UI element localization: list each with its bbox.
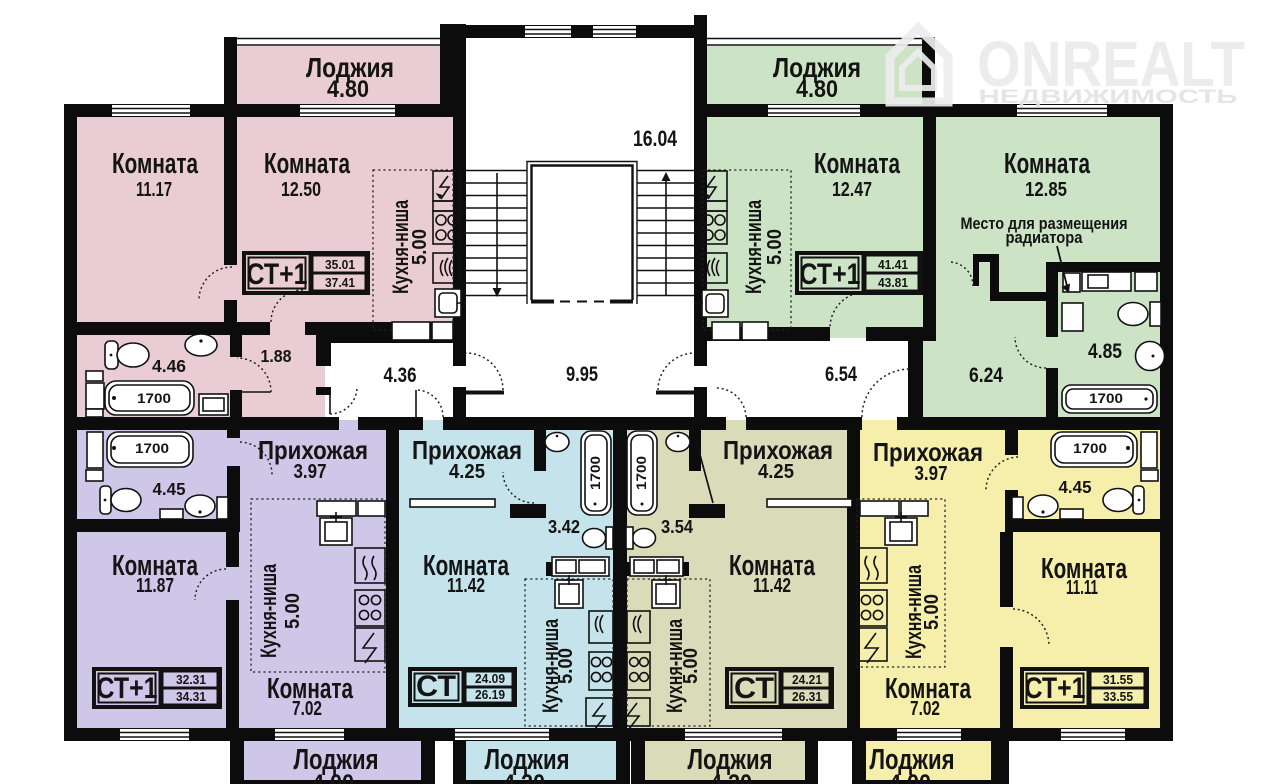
svg-text:6.24: 6.24 [969, 364, 1003, 387]
svg-text:5.00: 5.00 [555, 648, 577, 684]
svg-text:4.80: 4.80 [796, 76, 838, 103]
svg-text:12.47: 12.47 [832, 179, 872, 201]
svg-text:5.00: 5.00 [409, 229, 431, 265]
svg-text:5.00: 5.00 [282, 593, 304, 629]
svg-text:4.46: 4.46 [152, 356, 186, 376]
svg-text:1700: 1700 [137, 390, 171, 406]
svg-text:4.45: 4.45 [1059, 477, 1092, 497]
svg-text:СТ+1: СТ+1 [247, 258, 308, 291]
svg-text:32.31: 32.31 [176, 672, 206, 687]
svg-text:5.00: 5.00 [921, 594, 943, 630]
svg-text:24.09: 24.09 [475, 671, 505, 686]
svg-text:1700: 1700 [587, 456, 603, 490]
svg-text:16.04: 16.04 [633, 126, 678, 151]
svg-text:24.21: 24.21 [792, 672, 822, 687]
svg-text:26.31: 26.31 [792, 689, 822, 704]
svg-text:4.80: 4.80 [327, 76, 369, 103]
svg-text:4.25: 4.25 [449, 461, 485, 483]
svg-text:1700: 1700 [633, 456, 649, 490]
svg-text:4.25: 4.25 [758, 461, 794, 483]
svg-text:1.88: 1.88 [261, 346, 292, 366]
svg-text:37.41: 37.41 [325, 275, 355, 290]
svg-text:11.11: 11.11 [1066, 577, 1098, 599]
svg-text:4.20: 4.20 [503, 770, 545, 784]
svg-text:СТ+1: СТ+1 [1025, 672, 1086, 705]
svg-text:Кухня-ниша: Кухня-ниша [256, 563, 281, 658]
svg-text:4.85: 4.85 [1088, 340, 1122, 363]
svg-text:Комната: Комната [1004, 148, 1091, 180]
svg-text:3.97: 3.97 [915, 463, 948, 485]
svg-text:Комната: Комната [264, 148, 351, 180]
svg-text:7.02: 7.02 [910, 698, 940, 720]
svg-text:1700: 1700 [1073, 440, 1107, 456]
svg-text:9.95: 9.95 [566, 363, 598, 386]
svg-text:11.42: 11.42 [447, 575, 485, 597]
svg-text:11.87: 11.87 [136, 575, 174, 597]
svg-text:34.31: 34.31 [176, 689, 206, 704]
svg-text:35.01: 35.01 [325, 257, 355, 272]
svg-text:11.42: 11.42 [753, 575, 791, 597]
svg-text:31.55: 31.55 [1103, 672, 1133, 687]
svg-text:4.45: 4.45 [153, 479, 186, 499]
svg-text:радиатора: радиатора [1006, 229, 1084, 247]
svg-text:Кухня-ниша: Кухня-ниша [741, 199, 766, 294]
svg-text:5.00: 5.00 [764, 229, 786, 265]
svg-text:4.36: 4.36 [384, 364, 417, 387]
svg-text:5.00: 5.00 [680, 648, 702, 684]
svg-text:12.85: 12.85 [1025, 179, 1067, 201]
svg-text:СТ+1: СТ+1 [97, 672, 158, 705]
svg-text:СТ: СТ [734, 672, 774, 705]
svg-text:6.54: 6.54 [825, 363, 857, 386]
svg-text:Комната: Комната [112, 148, 199, 180]
svg-text:33.55: 33.55 [1103, 689, 1133, 704]
svg-text:1700: 1700 [135, 440, 169, 456]
svg-text:1700: 1700 [1089, 390, 1123, 406]
svg-text:11.17: 11.17 [136, 179, 172, 201]
svg-text:4.00: 4.00 [889, 770, 931, 784]
svg-text:СТ+1: СТ+1 [800, 258, 861, 291]
svg-text:43.81: 43.81 [878, 275, 908, 290]
svg-text:7.02: 7.02 [292, 698, 322, 720]
svg-text:3.97: 3.97 [294, 461, 327, 483]
svg-text:41.41: 41.41 [878, 257, 908, 272]
svg-text:26.19: 26.19 [475, 687, 505, 702]
svg-text:12.50: 12.50 [281, 179, 321, 201]
svg-text:3.42: 3.42 [548, 517, 580, 537]
svg-text:НЕДВИЖИМОСТЬ: НЕДВИЖИМОСТЬ [979, 87, 1238, 108]
svg-text:4.20: 4.20 [710, 770, 752, 784]
svg-text:Комната: Комната [814, 148, 901, 180]
svg-text:СТ: СТ [416, 670, 456, 703]
svg-text:3.54: 3.54 [661, 517, 693, 537]
svg-text:4.00: 4.00 [312, 770, 354, 784]
